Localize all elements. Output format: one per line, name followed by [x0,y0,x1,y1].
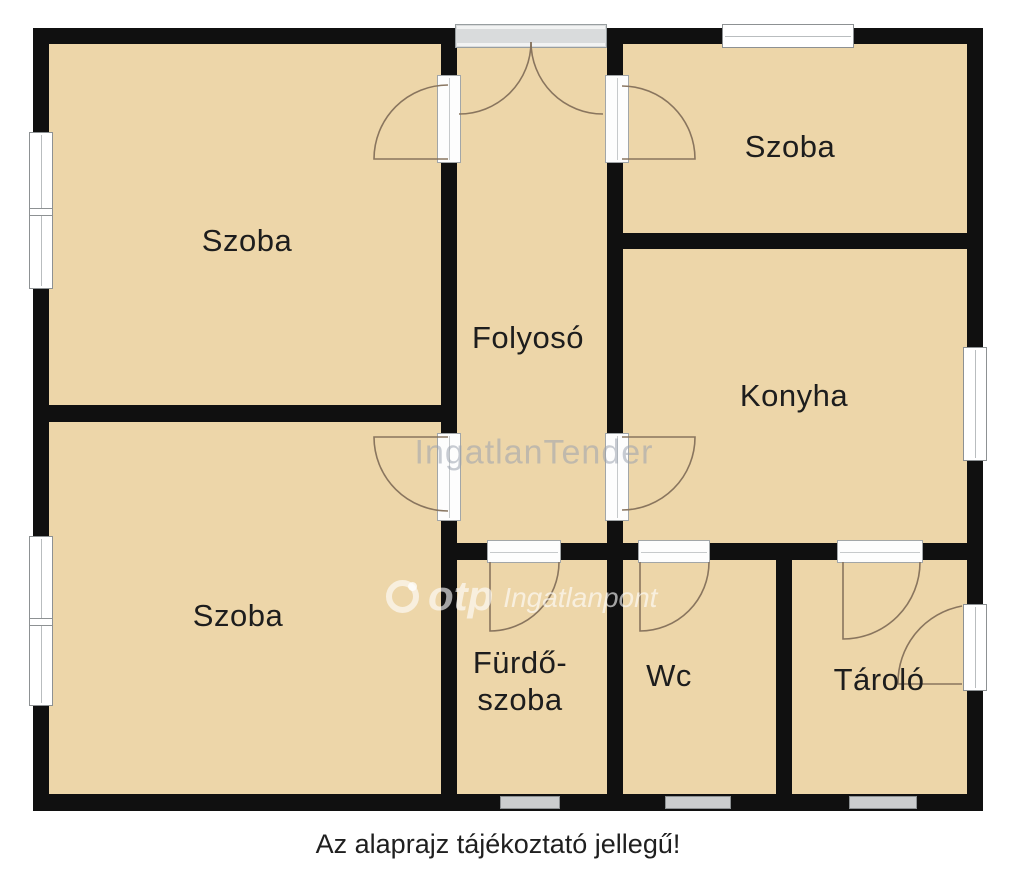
room-label-szoba-tr: Szoba [745,129,835,165]
room-label-furdoszoba-line1: Fürdő- [473,644,567,681]
floor-plan-canvas: Szoba Folyosó Szoba Konyha Szoba Fürdő- … [0,0,1024,894]
watermark-ingatlantender: IngatlanTender [415,434,654,473]
room-label-wc: Wc [646,658,692,694]
room-label-furdoszoba-line2: szoba [473,681,567,718]
door-swing-szoba-tr [622,86,695,159]
door-swing-tarolo-top [843,562,920,639]
watermark-otp-brand: otp [428,575,493,617]
watermark-otp-ingatlanpont: otp Ingatlanpont [386,575,657,617]
door-swing-entrance-left [459,42,531,114]
room-label-szoba-tl: Szoba [202,223,292,259]
plan-caption: Az alaprajz tájékoztató jellegű! [0,829,996,860]
room-label-furdoszoba: Fürdő- szoba [473,644,567,718]
room-label-konyha: Konyha [740,378,848,414]
otp-logo-dot [408,582,417,591]
otp-logo-icon [386,580,419,613]
room-label-szoba-bl: Szoba [193,598,283,634]
room-label-folyoso: Folyosó [472,320,584,356]
door-swing-szoba-tl [374,85,448,159]
door-swing-entrance-right [531,42,603,114]
watermark-otp-suffix: Ingatlanpont [503,580,657,612]
room-label-tarolo: Tároló [834,662,925,698]
